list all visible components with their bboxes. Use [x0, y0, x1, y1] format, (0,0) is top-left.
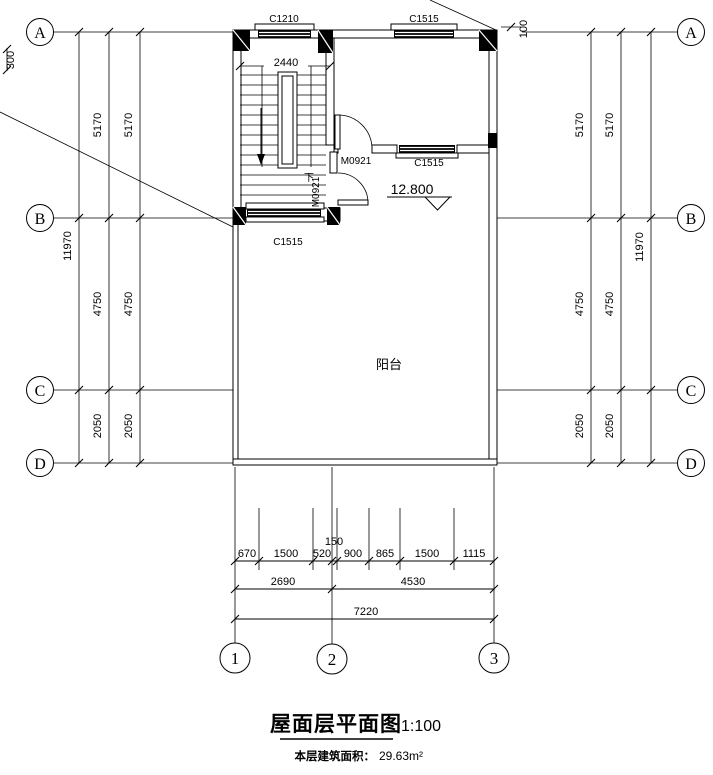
grid-label-1: 1 — [231, 649, 240, 668]
dim-b1-670: 670 — [238, 548, 256, 560]
dim-left-ab-2: 5170 — [123, 113, 135, 137]
grid-label-D-right: D — [685, 456, 697, 473]
dimensions-left: 5170 5170 4750 4750 2050 2050 11970 300 — [3, 28, 144, 467]
dim-stair-width: 2440 — [274, 57, 298, 69]
area-value: 29.63m² — [379, 749, 423, 763]
leader-line-left — [0, 112, 233, 227]
dim-left-cd-1: 2050 — [92, 414, 104, 438]
window-c1515-mid: C1515 — [396, 145, 458, 169]
window-tag-c1515-mid: C1515 — [414, 158, 444, 169]
wall-mid-2 — [457, 145, 489, 153]
grid-right: A B C D — [497, 19, 705, 477]
dim-b2-4530: 4530 — [401, 576, 425, 588]
room-label-balcony: 阳台 — [376, 357, 402, 372]
floor-plan-drawing: A B C D A B C D 5170 5170 4750 4750 2050… — [0, 0, 713, 775]
elevation-marker: 12.800 — [387, 181, 452, 210]
window-c1515-top: C1515 — [391, 14, 457, 38]
dim-left-total: 11970 — [62, 231, 74, 261]
window-tag-c1515-top: C1515 — [409, 14, 439, 25]
grid-label-A-right: A — [685, 25, 697, 42]
grid-label-C-left: C — [35, 383, 46, 400]
dim-left-bc-2: 4750 — [123, 292, 135, 316]
area-label: 本层建筑面积： — [295, 749, 376, 763]
grid-label-B-right: B — [686, 211, 697, 228]
doors: M0921 M0921 下 — [304, 115, 372, 207]
dim-b1-150: 150 — [325, 536, 343, 548]
dimensions-right: 5170 5170 4750 4750 2050 2050 11970 100 — [501, 20, 655, 467]
grid-label-C-right: C — [686, 383, 697, 400]
balcony-rail-left — [233, 222, 238, 465]
grid-label-3: 3 — [490, 649, 499, 668]
stair: 2440 — [236, 55, 334, 195]
window-tag-c1210: C1210 — [269, 14, 299, 25]
column — [488, 133, 497, 148]
dimensions-bottom: 670 1500 520 150 900 865 1500 1115 2690 … — [231, 467, 498, 644]
dim-b3-7220: 7220 — [354, 606, 378, 618]
dim-roof-offset-right: 100 — [518, 20, 530, 38]
drawing-title: 屋面层平面图 — [270, 713, 402, 736]
wall-hall — [330, 152, 337, 173]
window-c1515-b: C1515 — [246, 203, 324, 248]
dim-right-bc-1: 4750 — [574, 292, 586, 316]
floor-plan-page: A B C D A B C D 5170 5170 4750 4750 2050… — [0, 0, 713, 775]
dim-left-cd-2: 2050 — [123, 414, 135, 438]
wall-right — [489, 30, 497, 465]
dim-b1-1500b: 1500 — [415, 548, 439, 560]
grid-label-2: 2 — [328, 650, 337, 669]
title-block: 屋面层平面图 1:100 本层建筑面积： 29.63m² — [270, 713, 441, 763]
grid-label-D-left: D — [34, 456, 46, 473]
dim-right-total: 11970 — [634, 232, 646, 262]
grid-label-A-left: A — [34, 25, 46, 42]
window-tag-c1515-b: C1515 — [273, 237, 303, 248]
dim-left-ab-1: 5170 — [92, 113, 104, 137]
balcony-rail-bottom — [233, 459, 497, 465]
grid-left: A B C D — [27, 19, 234, 477]
dim-b1-865: 865 — [376, 548, 394, 560]
door-tag-upper: M0921 — [341, 156, 372, 167]
door-m0921-lower: M0921 下 — [304, 173, 368, 207]
dim-right-ab-2: 5170 — [604, 113, 616, 137]
grid-label-B-left: B — [35, 211, 46, 228]
wall-stair-right — [326, 38, 334, 145]
dim-b1-1115: 1115 — [463, 548, 486, 560]
drawing-scale: 1:100 — [401, 718, 441, 735]
wall-left — [233, 30, 241, 222]
grid-bottom: 1 2 3 — [220, 643, 509, 674]
dim-roof-offset-left: 300 — [5, 51, 17, 69]
door-m0921-upper: M0921 — [335, 115, 372, 167]
dim-right-cd-2: 2050 — [604, 414, 616, 438]
dim-right-cd-1: 2050 — [574, 414, 586, 438]
elevation-triangle-icon — [425, 197, 450, 210]
elevation-value: 12.800 — [391, 181, 434, 197]
dim-b2-2690: 2690 — [271, 576, 295, 588]
dim-b1-520: 520 — [313, 548, 331, 560]
wall-mid-1 — [372, 145, 397, 153]
dim-left-bc-1: 4750 — [92, 292, 104, 316]
dim-right-bc-2: 4750 — [604, 292, 616, 316]
dim-right-ab-1: 5170 — [574, 113, 586, 137]
dim-b1-900: 900 — [344, 548, 362, 560]
window-c1210: C1210 — [255, 14, 314, 38]
dim-b1-1500a: 1500 — [274, 548, 298, 560]
